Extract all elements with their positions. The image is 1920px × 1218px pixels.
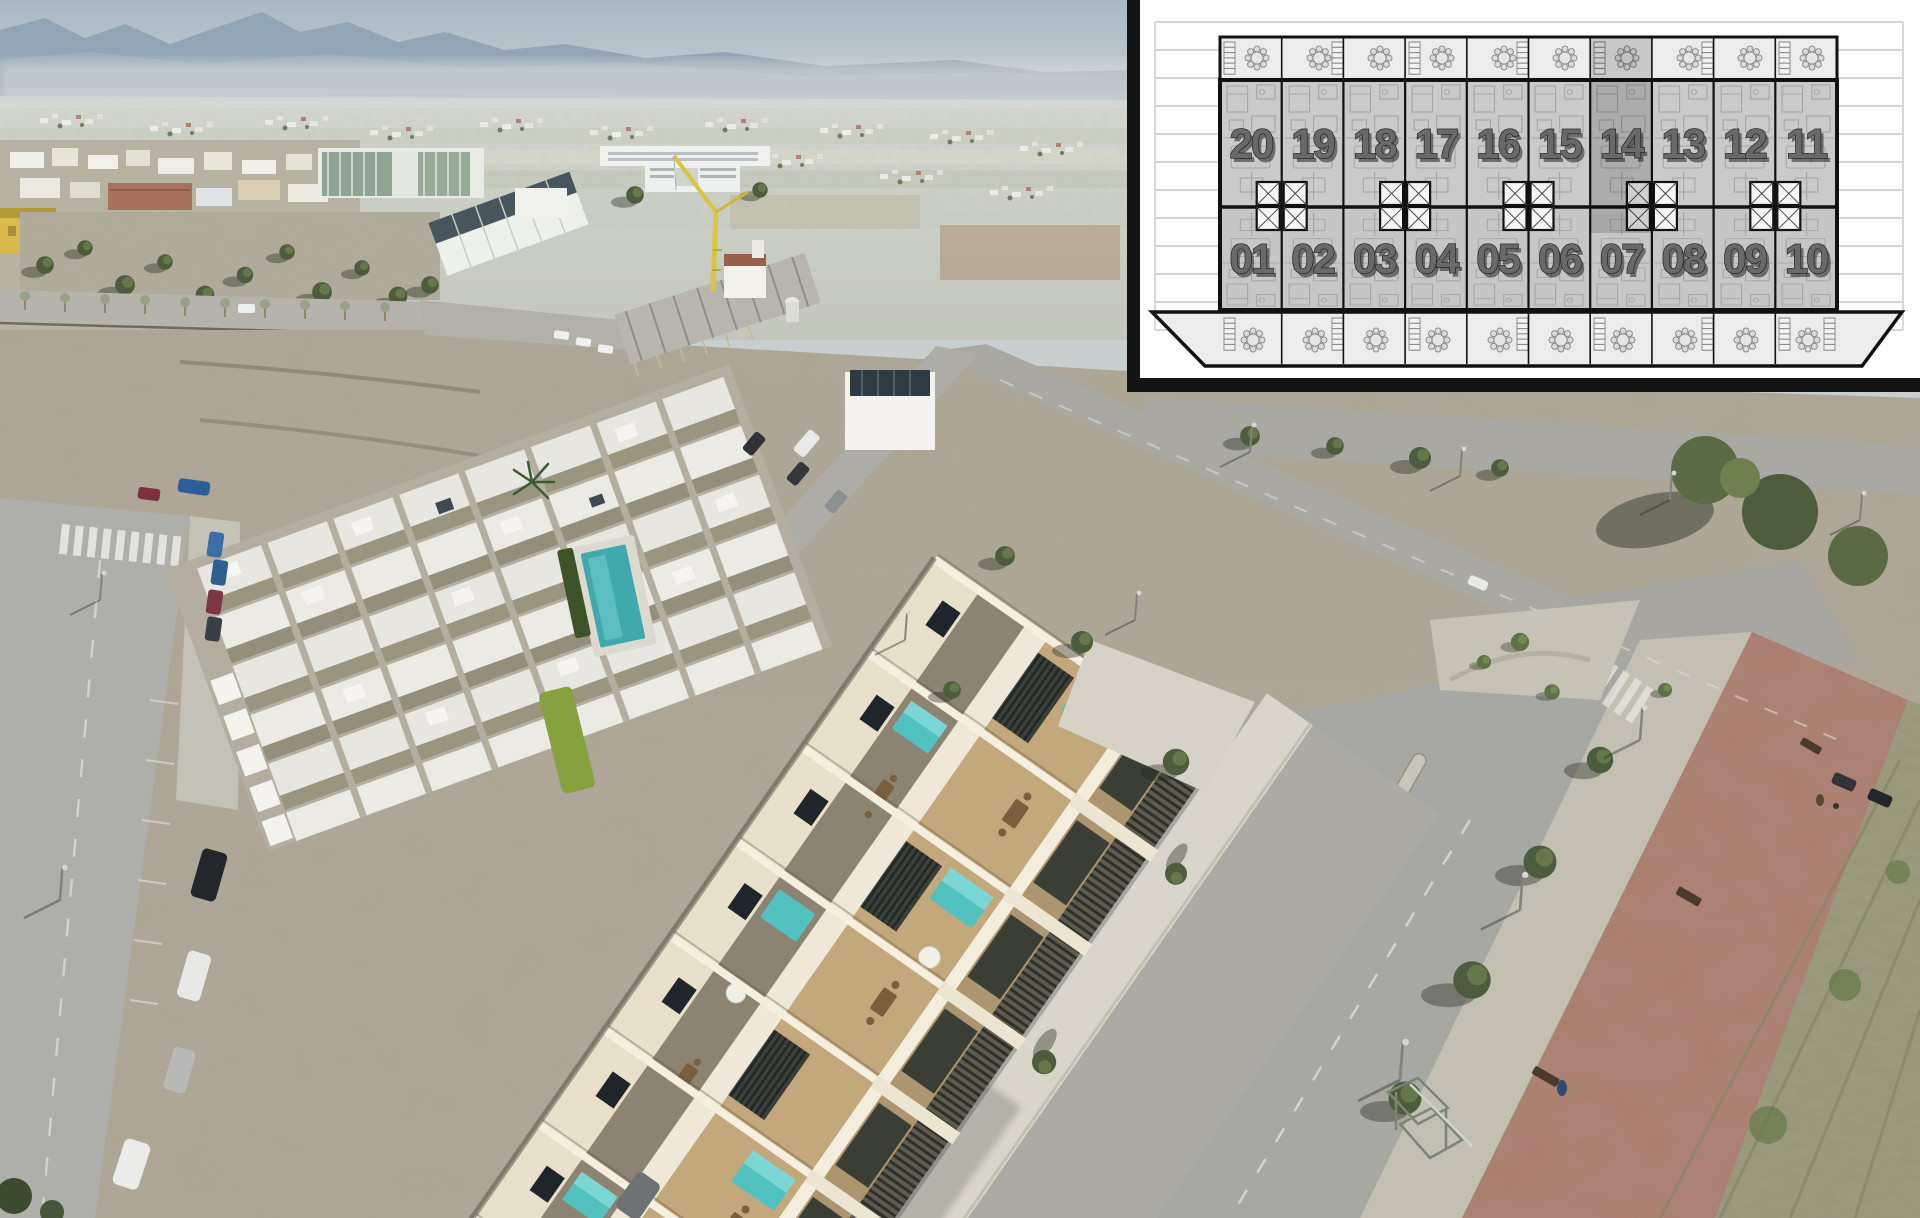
svg-text:16: 16 — [1476, 120, 1519, 167]
screenshot-root: 2020 1919 1818 1717 1616 1515 1414 1313 … — [0, 0, 1920, 1218]
svg-text:13: 13 — [1661, 120, 1704, 167]
plowed-field — [940, 225, 1120, 280]
svg-text:07: 07 — [1600, 235, 1643, 282]
unit-label: 1919 — [1291, 120, 1337, 171]
unit-label: 1616 — [1476, 120, 1522, 171]
site-plan: 2020 1919 1818 1717 1616 1515 1414 1313 … — [1127, 0, 1920, 392]
unit-label: 0404 — [1415, 235, 1463, 286]
unit-label: 0909 — [1723, 235, 1769, 286]
svg-text:01: 01 — [1230, 235, 1274, 282]
unit-label: 0101 — [1230, 235, 1277, 286]
unit-label: 1010 — [1785, 235, 1831, 286]
unit-label: 1717 — [1415, 120, 1461, 171]
unit-label: 0202 — [1291, 235, 1337, 286]
unit-label: 1414 — [1600, 120, 1648, 171]
svg-text:03: 03 — [1353, 235, 1396, 282]
solar-house — [845, 370, 935, 450]
panel-border-bottom — [1127, 378, 1920, 392]
svg-text:19: 19 — [1291, 120, 1334, 167]
svg-text:14: 14 — [1600, 120, 1645, 167]
unit-label: 0707 — [1600, 235, 1646, 286]
svg-text:09: 09 — [1723, 235, 1766, 282]
svg-text:11: 11 — [1786, 120, 1828, 167]
unit-label: 0808 — [1661, 235, 1708, 286]
unit-label: 1212 — [1723, 120, 1769, 171]
svg-text:04: 04 — [1415, 235, 1460, 282]
panel-border-left — [1127, 0, 1140, 392]
terrace-table-icon — [1245, 46, 1269, 70]
svg-text:20: 20 — [1230, 120, 1273, 167]
unit-label: 0303 — [1353, 235, 1399, 286]
unit-label: 0505 — [1476, 235, 1523, 286]
car — [238, 304, 255, 313]
svg-text:15: 15 — [1538, 120, 1582, 167]
svg-text:17: 17 — [1415, 120, 1458, 167]
unit-label: 1515 — [1538, 120, 1585, 171]
unit-label: 1111 — [1786, 120, 1831, 171]
brick-building — [108, 183, 192, 210]
svg-text:10: 10 — [1785, 235, 1828, 282]
svg-text:05: 05 — [1476, 235, 1520, 282]
unit-label: 1313 — [1661, 120, 1707, 171]
svg-text:08: 08 — [1661, 235, 1705, 282]
svg-text:02: 02 — [1291, 235, 1334, 282]
svg-text:18: 18 — [1353, 120, 1397, 167]
unit-label: 1818 — [1353, 120, 1400, 171]
green-roof-warehouse — [322, 152, 392, 196]
svg-text:06: 06 — [1538, 235, 1581, 282]
white-cube-building — [515, 188, 567, 218]
stair-icon — [1224, 42, 1235, 74]
svg-text:12: 12 — [1723, 120, 1766, 167]
unit-label: 0606 — [1538, 235, 1584, 286]
site-plan-panel: 2020 1919 1818 1717 1616 1515 1414 1313 … — [1127, 0, 1920, 392]
unit-label: 2020 — [1230, 120, 1276, 171]
